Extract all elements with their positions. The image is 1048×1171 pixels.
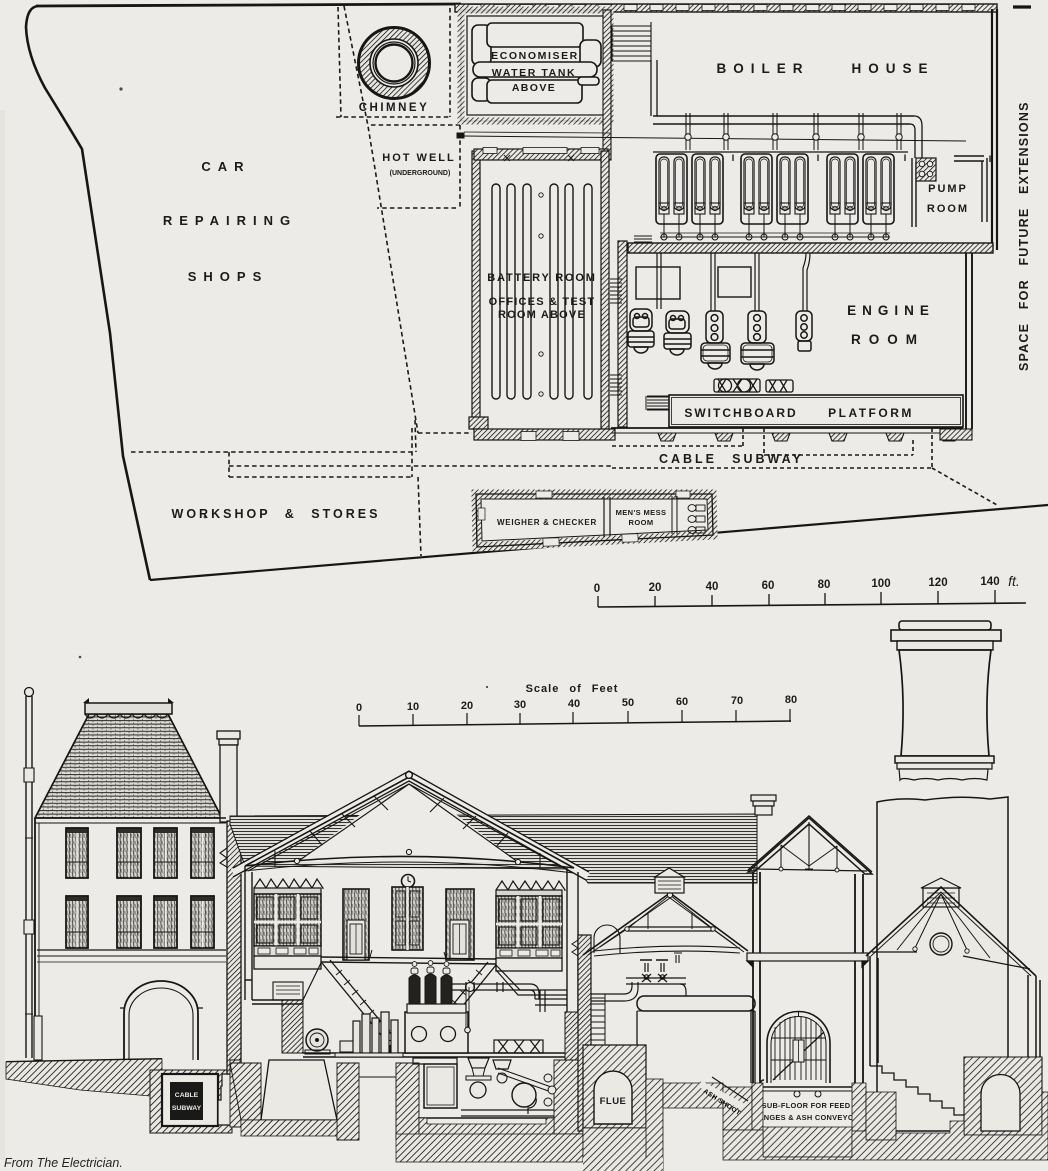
svg-text:HOUSE: HOUSE: [851, 61, 934, 76]
svg-text:10: 10: [407, 701, 419, 713]
svg-text:(UNDERGROUND): (UNDERGROUND): [390, 170, 451, 177]
svg-text:ft.: ft.: [1008, 573, 1020, 589]
svg-text:RANGES & ASH CONVEYOR: RANGES & ASH CONVEYOR: [752, 1113, 859, 1122]
svg-text:OFFICES & TEST: OFFICES & TEST: [489, 296, 596, 308]
svg-text:REPAIRING: REPAIRING: [163, 213, 297, 228]
svg-text:80: 80: [785, 694, 797, 706]
svg-text:70: 70: [731, 695, 743, 707]
svg-text:100: 100: [871, 578, 890, 590]
svg-text:140: 140: [980, 576, 999, 588]
svg-text:SUBWAY: SUBWAY: [732, 452, 804, 466]
svg-text:ECONOMISER: ECONOMISER: [491, 50, 579, 62]
svg-text:ROOM: ROOM: [629, 518, 654, 527]
svg-text:HOT WELL: HOT WELL: [382, 152, 455, 164]
svg-text:ROOM: ROOM: [851, 332, 925, 347]
svg-text:SWITCHBOARD: SWITCHBOARD: [684, 406, 797, 420]
svg-text:SUBWAY: SUBWAY: [172, 1105, 202, 1112]
svg-text:BOILER: BOILER: [716, 61, 809, 76]
svg-text:I: I: [817, 153, 820, 163]
svg-text:40: 40: [568, 698, 580, 710]
svg-text:50: 50: [622, 697, 634, 709]
svg-text:0: 0: [594, 583, 600, 595]
svg-text:I: I: [904, 153, 907, 163]
svg-text:Scale of Feet: Scale of Feet: [526, 683, 619, 695]
svg-text:I: I: [989, 154, 992, 164]
svg-text:PLATFORM: PLATFORM: [828, 406, 914, 420]
svg-text:ROOM ABOVE: ROOM ABOVE: [498, 309, 586, 321]
svg-text:MEN'S MESS: MEN'S MESS: [616, 508, 667, 517]
svg-text:ROOM: ROOM: [927, 203, 969, 215]
svg-text:ENGINE: ENGINE: [847, 303, 935, 318]
svg-text:0: 0: [356, 702, 362, 714]
svg-text:120: 120: [928, 577, 947, 589]
svg-text:WORKSHOP & STORES: WORKSHOP & STORES: [172, 507, 381, 521]
svg-text:60: 60: [676, 696, 688, 708]
svg-text:WATER TANK: WATER TANK: [492, 67, 576, 79]
svg-text:FLUE: FLUE: [600, 1096, 627, 1107]
svg-text:60: 60: [762, 580, 775, 592]
svg-text:20: 20: [461, 700, 473, 712]
svg-text:CHIMNEY: CHIMNEY: [359, 102, 430, 114]
svg-text:I: I: [732, 153, 735, 163]
svg-text:ABOVE: ABOVE: [512, 82, 556, 94]
svg-text:PUMP: PUMP: [928, 183, 968, 195]
svg-text:SPACE FOR FUTURE EXTENSIONS: SPACE FOR FUTURE EXTENSIONS: [1017, 101, 1031, 371]
svg-text:80: 80: [818, 579, 831, 591]
svg-text:CAR: CAR: [201, 159, 250, 174]
svg-text:From The Electrician.: From The Electrician.: [4, 1156, 123, 1170]
svg-text:SUB-FLOOR FOR FEED: SUB-FLOOR FOR FEED: [762, 1101, 851, 1110]
svg-text:CABLE: CABLE: [175, 1092, 199, 1099]
svg-text:SHOPS: SHOPS: [188, 269, 269, 284]
svg-text:30: 30: [514, 699, 526, 711]
svg-text:40: 40: [706, 581, 719, 593]
svg-text:BATTERY ROOM: BATTERY ROOM: [487, 272, 596, 284]
svg-text:20: 20: [649, 582, 662, 594]
svg-text:WEIGHER & CHECKER: WEIGHER & CHECKER: [497, 518, 597, 527]
svg-text:CABLE: CABLE: [659, 452, 717, 466]
